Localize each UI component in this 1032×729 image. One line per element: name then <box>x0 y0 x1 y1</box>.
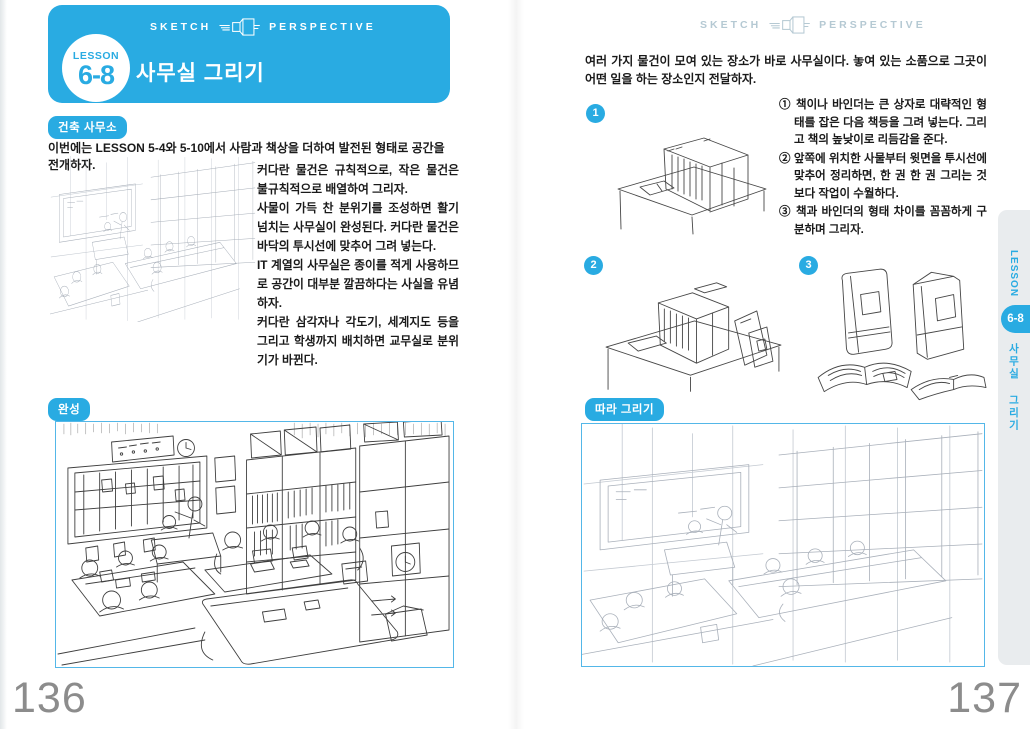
book-spread: SKETCH PERSPECTIVE LESSON 6-8 사무실 그리기 건축… <box>0 0 1032 729</box>
books-sketch-step2 <box>598 262 794 394</box>
sidebar-lesson-number-badge: 6-8 <box>1001 305 1030 333</box>
left-body-text: 커다란 물건은 규칙적으로, 작은 물건은 불규칙적으로 배열하여 그리자. 사… <box>257 161 459 370</box>
office-sketch-construction-large <box>582 424 984 666</box>
body-paragraph: 사물이 가득 찬 분위기를 조성하면 활기 넘치는 사무실이 완성된다. 커다란… <box>257 199 459 256</box>
sidebar-lesson-tab: LESSON 6-8 사무실 그리기 <box>998 210 1030 665</box>
books-sketch-step1 <box>608 112 778 236</box>
brand-logo-right-text: PERSPECTIVE <box>269 21 376 33</box>
brand-logo-right-text: PERSPECTIVE <box>819 19 926 31</box>
right-intro-text: 여러 가지 물건이 모여 있는 장소가 바로 사무실이다. 놓여 있는 소품으로… <box>585 52 987 88</box>
step-1-number: 1 <box>586 104 605 123</box>
brand-logo: SKETCH PERSPECTIVE <box>150 16 376 38</box>
lesson-number-badge: LESSON 6-8 <box>62 34 130 102</box>
sidebar-lesson-label: LESSON <box>1009 249 1020 296</box>
books-sketch-step3 <box>806 264 988 406</box>
step-instructions: ① 책이나 바인더는 큰 상자로 대략적인 형태를 잡은 다음 책등을 그려 넣… <box>779 97 987 240</box>
page-number-left: 136 <box>12 674 87 723</box>
office-sketch-final-frame <box>55 421 454 668</box>
office-sketch-final <box>56 422 453 667</box>
perspective-box-icon <box>218 16 262 38</box>
office-sketch-construction-frame <box>581 423 985 667</box>
instruction-item: ② 앞쪽에 위치한 사물부터 윗면을 투시선에 맞추어 정리하면, 한 권 한 … <box>779 151 987 204</box>
lesson-number: 6-8 <box>78 62 114 88</box>
page-edge-shadow <box>0 0 7 729</box>
brand-logo-left-text: SKETCH <box>700 19 761 31</box>
page-number-right: 137 <box>930 674 1022 723</box>
body-paragraph: 커다란 삼각자나 각도기, 세계지도 등을 그리고 학생까지 배치하면 교무실로… <box>257 313 459 370</box>
completed-badge: 완성 <box>48 398 90 421</box>
sidebar-lesson-label-wrap: LESSON <box>998 250 1030 296</box>
follow-along-badge: 따라 그리기 <box>585 398 664 421</box>
center-seam <box>508 0 524 729</box>
body-paragraph: IT 계열의 사무실은 종이를 적게 사용하므로 공간이 대부분 깔끔하다는 사… <box>257 256 459 313</box>
brand-logo: SKETCH PERSPECTIVE <box>700 14 926 36</box>
sidebar-lesson-title: 사무실 그리기 <box>1007 343 1022 432</box>
instruction-item: ① 책이나 바인더는 큰 상자로 대략적인 형태를 잡은 다음 책등을 그려 넣… <box>779 97 987 150</box>
section-badge: 건축 사무소 <box>48 116 127 139</box>
instruction-item: ③ 책과 바인더의 형태 차이를 꼼꼼하게 구분하며 그리자. <box>779 204 987 239</box>
office-sketch-construction-small <box>50 156 256 322</box>
brand-logo-left-text: SKETCH <box>150 21 211 33</box>
body-paragraph: 커다란 물건은 규칙적으로, 작은 물건은 불규칙적으로 배열하여 그리자. <box>257 161 459 199</box>
page-title: 사무실 그리기 <box>136 57 265 87</box>
perspective-box-icon <box>768 14 812 36</box>
